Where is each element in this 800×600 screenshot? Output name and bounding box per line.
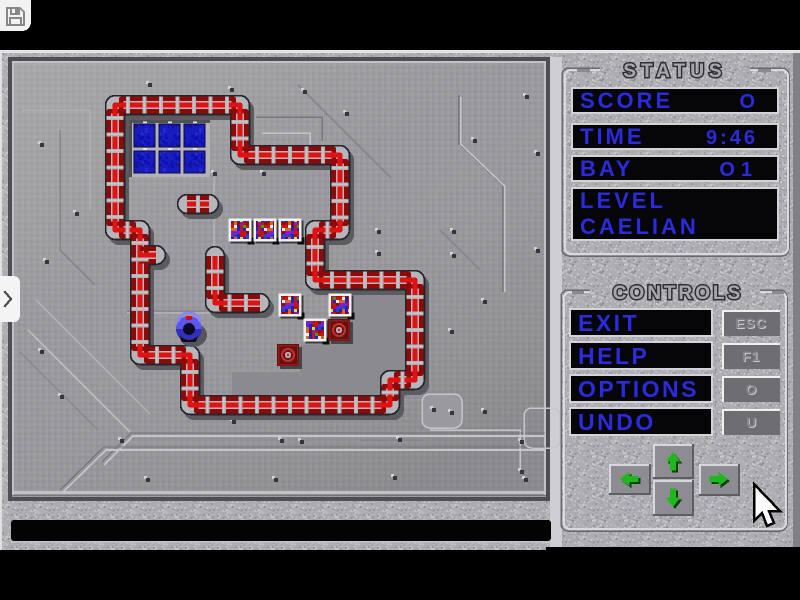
svg-text:OPTIONS: OPTIONS (578, 376, 699, 402)
svg-text:O1: O1 (719, 159, 758, 181)
svg-text:UNDO: UNDO (578, 409, 656, 435)
svg-text:U: U (746, 414, 756, 430)
svg-text:CAELIAN: CAELIAN (580, 214, 699, 239)
svg-text:9:46: 9:46 (706, 127, 758, 149)
svg-text:CONTROLS: CONTROLS (613, 283, 744, 304)
svg-text:F1: F1 (742, 348, 760, 364)
svg-text:BAY: BAY (580, 156, 633, 181)
svg-text:LEVEL: LEVEL (580, 188, 666, 213)
svg-text:EXIT: EXIT (578, 310, 639, 336)
svg-text:TIME: TIME (580, 124, 645, 149)
svg-text:HELP: HELP (578, 343, 649, 369)
svg-text:STATUS: STATUS (623, 61, 726, 82)
svg-text:ESC: ESC (735, 315, 767, 331)
svg-text:O: O (739, 91, 758, 113)
svg-text:SCORE: SCORE (580, 88, 673, 113)
svg-text:O: O (746, 381, 757, 397)
